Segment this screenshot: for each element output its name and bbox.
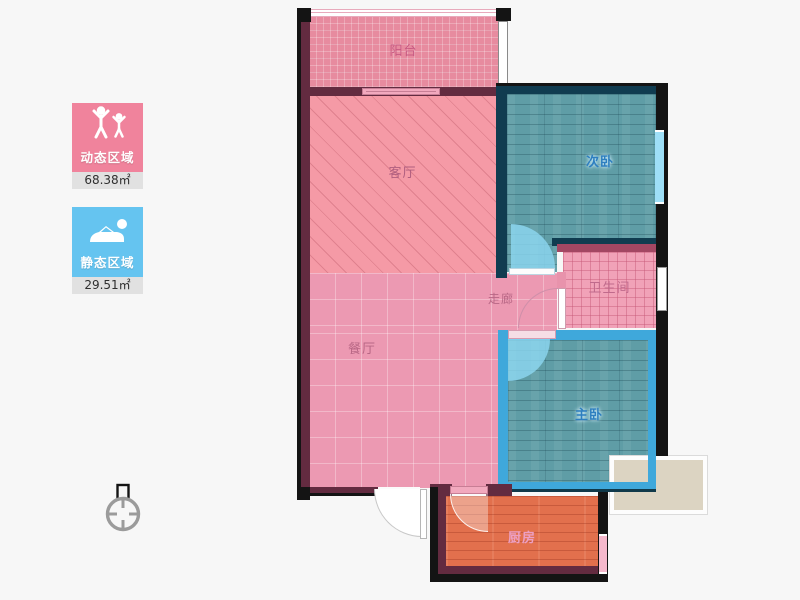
door-leaf-bedroom2	[509, 268, 555, 275]
wall-segment-living-bedroom2	[496, 87, 507, 278]
sliding-door-seam	[366, 91, 436, 92]
door-swing-entry	[374, 489, 422, 537]
dynamic-area-icon	[85, 105, 131, 141]
door-leaf-master	[508, 330, 556, 339]
legend-static-label: 静态区域	[80, 252, 134, 271]
label-living: 客厅	[309, 162, 496, 181]
wall-post-topright	[496, 8, 511, 21]
wall-segment-master-bottom	[498, 482, 656, 492]
wall-segment-master-left	[498, 340, 508, 492]
static-area-icon	[86, 216, 130, 246]
legend-dynamic-area-card: 动态区域	[72, 103, 143, 172]
label-kitchen: 厨房	[446, 527, 598, 546]
compass-north-icon	[100, 482, 146, 538]
wall-segment-kitchen-left-inner	[438, 496, 446, 572]
wall-segment-master-right-inner	[648, 340, 656, 482]
wall-segment-dining-bottom	[300, 487, 378, 496]
wall-segment-master-right-outer	[656, 332, 668, 456]
window-segment-bedroom2	[655, 130, 664, 204]
legend-dynamic-area-value: 68.38㎡	[72, 172, 143, 189]
room-living	[309, 95, 496, 273]
wall-segment-kitchen-bottom-inner	[438, 566, 598, 574]
wall-segment-kitchen-bottom-outer	[430, 574, 608, 582]
wall-segment-bathroom-top	[557, 244, 656, 252]
wall-post-topleft	[297, 8, 311, 22]
wall-post-bottomleft	[297, 487, 310, 500]
wall-segment-bedroom2-top	[496, 83, 668, 94]
window-segment-balcony-top	[310, 9, 498, 17]
legend-static-area-card: 静态区域	[72, 207, 143, 277]
window-segment-balcony-right	[498, 21, 508, 87]
legend-static-area-value: 29.51㎡	[72, 277, 143, 294]
door-leaf-kitchen	[450, 486, 488, 494]
label-corridor: 走廊	[478, 290, 524, 307]
legend-dynamic-label: 动态区域	[80, 147, 134, 166]
floorplan-page: 动态区域 68.38㎡ 静态区域 29.51㎡	[0, 0, 800, 600]
wall-segment-kitchen-top-right	[486, 484, 512, 496]
window-segment-bathroom	[657, 267, 667, 311]
label-balcony: 阳台	[309, 40, 498, 59]
label-bathroom: 卫生间	[563, 277, 656, 296]
wall-segment-left	[297, 8, 310, 495]
door-leaf-entry	[420, 489, 427, 539]
label-master: 主卧	[559, 404, 619, 423]
label-dining: 餐厅	[330, 338, 394, 357]
label-bedroom2: 次卧	[570, 151, 630, 170]
window-segment-kitchen	[599, 534, 607, 574]
wall-segment-kitchen-left-outer	[430, 487, 438, 580]
